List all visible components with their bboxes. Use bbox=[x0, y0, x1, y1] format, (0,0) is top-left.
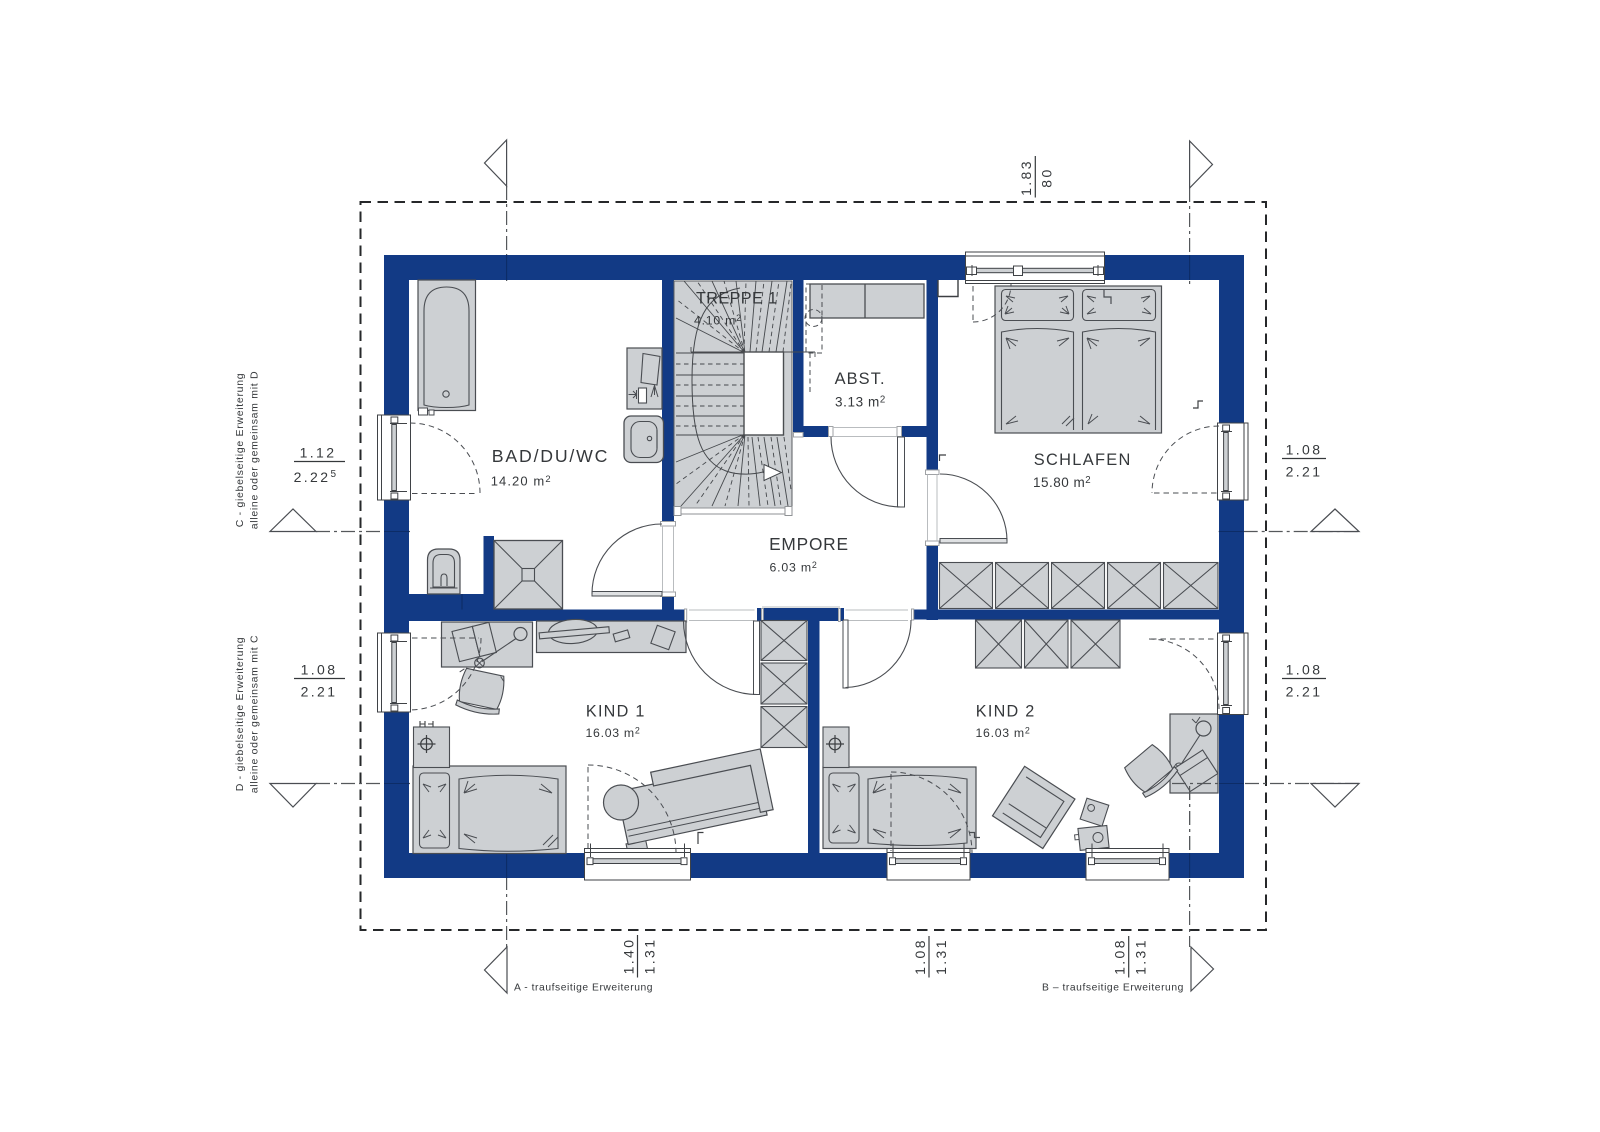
svg-text:KIND 2: KIND 2 bbox=[976, 703, 1036, 721]
svg-text:1.08: 1.08 bbox=[1286, 442, 1323, 458]
svg-text:2.21: 2.21 bbox=[301, 684, 338, 700]
svg-text:C - giebelseitige Erweiterung: C - giebelseitige Erweiterung bbox=[234, 373, 246, 528]
svg-text:16.03 m2: 16.03 m2 bbox=[586, 725, 641, 740]
svg-text:15.80 m2: 15.80 m2 bbox=[1033, 475, 1091, 490]
svg-text:alleine oder gemeinsam mit D: alleine oder gemeinsam mit D bbox=[249, 371, 261, 530]
svg-text:1.31: 1.31 bbox=[933, 938, 949, 975]
svg-text:SCHLAFEN: SCHLAFEN bbox=[1034, 451, 1132, 469]
svg-text:3.13 m2: 3.13 m2 bbox=[835, 394, 886, 409]
svg-text:2.21: 2.21 bbox=[1286, 464, 1323, 480]
svg-text:80: 80 bbox=[1039, 167, 1055, 187]
svg-text:2.21: 2.21 bbox=[1286, 684, 1323, 700]
svg-text:1.08: 1.08 bbox=[1286, 662, 1323, 678]
svg-text:1.31: 1.31 bbox=[642, 938, 658, 975]
svg-text:EMPORE: EMPORE bbox=[769, 534, 849, 554]
svg-text:KIND 1: KIND 1 bbox=[586, 702, 646, 720]
svg-text:TREPPE 1: TREPPE 1 bbox=[696, 290, 777, 308]
svg-text:B – traufseitige Erweiterung: B – traufseitige Erweiterung bbox=[1042, 983, 1184, 994]
svg-text:ABST.: ABST. bbox=[835, 370, 886, 388]
svg-text:4.10 m2: 4.10 m2 bbox=[694, 313, 742, 328]
svg-text:alleine oder gemeinsam mit C: alleine oder gemeinsam mit C bbox=[249, 635, 261, 794]
svg-text:1.08: 1.08 bbox=[1112, 938, 1128, 975]
svg-text:D - giebelseitige Erweiterung: D - giebelseitige Erweiterung bbox=[234, 637, 246, 792]
svg-text:1.31: 1.31 bbox=[1133, 938, 1149, 975]
svg-text:1.08: 1.08 bbox=[912, 938, 928, 975]
svg-text:1.40: 1.40 bbox=[621, 938, 637, 975]
svg-text:1.12: 1.12 bbox=[300, 445, 337, 461]
svg-text:6.03 m2: 6.03 m2 bbox=[770, 560, 818, 575]
svg-text:16.03 m2: 16.03 m2 bbox=[976, 725, 1031, 740]
svg-text:A - traufseitige Erweiterung: A - traufseitige Erweiterung bbox=[514, 983, 653, 994]
svg-text:BAD/DU/WC: BAD/DU/WC bbox=[492, 446, 609, 466]
svg-text:1.08: 1.08 bbox=[301, 662, 338, 678]
svg-text:14.20 m2: 14.20 m2 bbox=[491, 473, 552, 489]
svg-text:1.83: 1.83 bbox=[1018, 159, 1034, 196]
